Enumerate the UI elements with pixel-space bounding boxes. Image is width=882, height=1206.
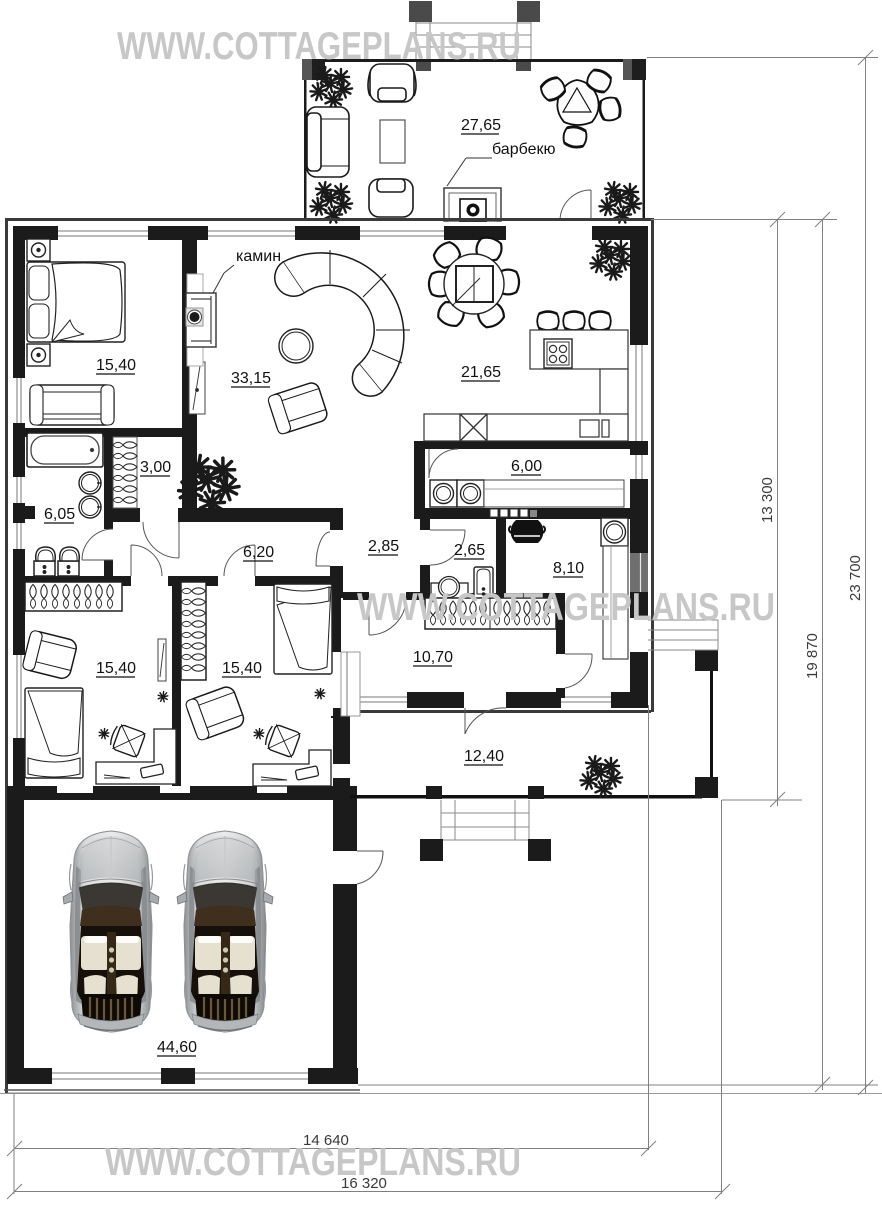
svg-text:2,85: 2,85 <box>368 538 399 555</box>
svg-text:19 870: 19 870 <box>804 633 821 679</box>
svg-text:6,00: 6,00 <box>511 458 542 475</box>
svg-text:6,20: 6,20 <box>243 544 274 561</box>
svg-text:44,60: 44,60 <box>157 1039 197 1056</box>
svg-text:13 300: 13 300 <box>759 477 776 523</box>
svg-text:27,65: 27,65 <box>461 117 501 134</box>
svg-text:10,70: 10,70 <box>413 649 453 666</box>
svg-text:6,05: 6,05 <box>44 506 75 523</box>
svg-text:33,15: 33,15 <box>231 370 271 387</box>
svg-text:2,65: 2,65 <box>454 542 485 559</box>
svg-text:WWW.COTTAGEPLANS.RU: WWW.COTTAGEPLANS.RU <box>105 1141 521 1184</box>
svg-text:WWW.COTTAGEPLANS.RU: WWW.COTTAGEPLANS.RU <box>357 586 775 629</box>
svg-text:21,65: 21,65 <box>461 364 501 381</box>
svg-text:барбекю: барбекю <box>492 141 555 158</box>
svg-text:15,40: 15,40 <box>96 357 136 374</box>
svg-text:23 700: 23 700 <box>847 555 864 601</box>
svg-text:камин: камин <box>236 248 281 265</box>
svg-text:15,40: 15,40 <box>96 660 136 677</box>
svg-text:3,00: 3,00 <box>140 459 171 476</box>
svg-text:15,40: 15,40 <box>222 660 262 677</box>
svg-text:12,40: 12,40 <box>464 748 504 765</box>
svg-text:WWW.COTTAGEPLANS.RU: WWW.COTTAGEPLANS.RU <box>117 25 521 68</box>
svg-text:8,10: 8,10 <box>553 560 584 577</box>
